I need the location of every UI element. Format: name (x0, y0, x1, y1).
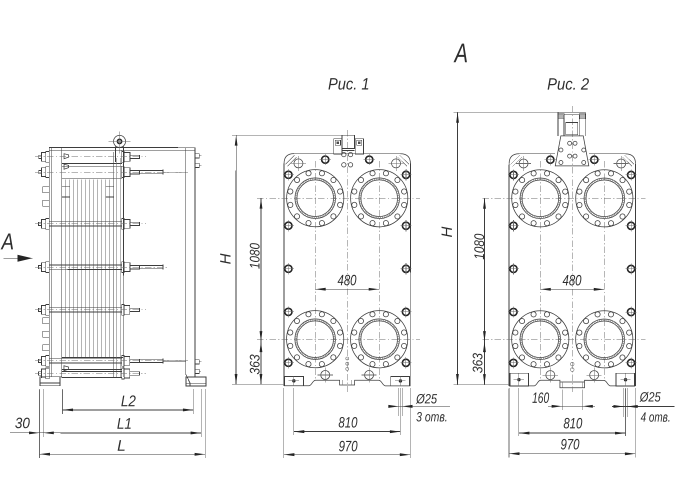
svg-text:L1: L1 (117, 416, 132, 433)
svg-text:160: 160 (532, 390, 549, 407)
svg-text:970: 970 (561, 436, 581, 453)
svg-text:L: L (117, 438, 126, 455)
svg-text:480: 480 (562, 272, 582, 289)
svg-text:H: H (217, 253, 234, 264)
svg-text:30: 30 (15, 415, 31, 432)
svg-text:363: 363 (469, 353, 485, 373)
svg-text:А: А (453, 38, 468, 68)
svg-text:4 отв.: 4 отв. (641, 410, 671, 425)
svg-text:Рис. 1: Рис. 1 (328, 75, 370, 93)
svg-text:1080: 1080 (471, 233, 487, 259)
svg-text:480: 480 (337, 272, 357, 289)
svg-text:3 отв.: 3 отв. (416, 409, 448, 424)
svg-text:H: H (439, 226, 456, 237)
svg-text:Ø25: Ø25 (415, 391, 437, 406)
svg-text:363: 363 (246, 354, 262, 374)
svg-text:А: А (0, 228, 14, 254)
svg-text:Ø25: Ø25 (639, 390, 661, 405)
svg-text:810: 810 (563, 415, 583, 432)
svg-text:Рис. 2: Рис. 2 (547, 76, 589, 94)
svg-text:L2: L2 (121, 393, 136, 410)
svg-text:1080: 1080 (246, 243, 262, 269)
svg-text:970: 970 (339, 438, 359, 455)
svg-text:810: 810 (338, 415, 358, 432)
